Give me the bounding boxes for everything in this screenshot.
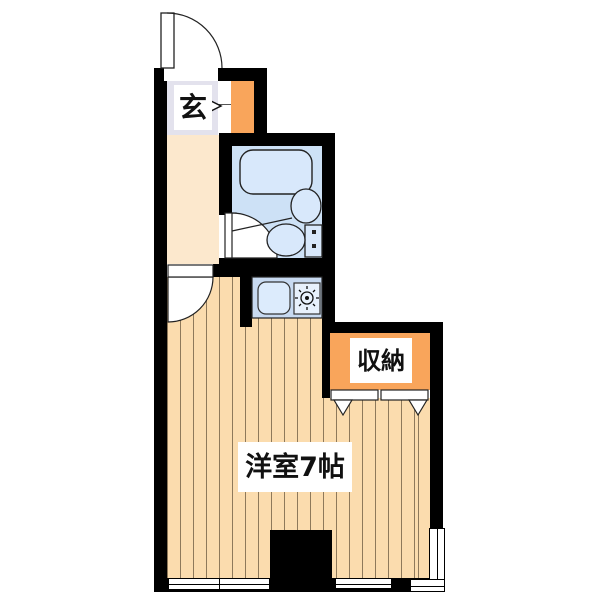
main-room-label-box: 洋室7帖 xyxy=(238,442,352,492)
toilet-handle-dot xyxy=(312,230,316,234)
entrance-label-box: 玄 xyxy=(174,85,212,130)
entry-door-swing-icon xyxy=(167,13,222,68)
bathtub-icon xyxy=(240,150,312,194)
entry-door-leaf xyxy=(161,13,174,68)
toilet-bowl-icon xyxy=(267,224,305,256)
closet-door-chevron-left xyxy=(334,400,352,415)
window-corner-horizontal xyxy=(410,579,445,592)
toilet-handle-dot2 xyxy=(312,244,316,248)
window-glass-line2 xyxy=(336,584,391,585)
window-divider xyxy=(219,579,220,589)
window-bottom-right xyxy=(335,578,392,589)
storage-label: 収納 xyxy=(357,349,405,373)
window-glass-line4 xyxy=(411,586,444,587)
kitchen-sink-icon xyxy=(258,282,290,314)
window-bottom-left xyxy=(168,578,270,590)
floor-plan: 玄 収納 洋室7帖 xyxy=(0,0,600,600)
room-door-swing-icon xyxy=(168,277,213,322)
closet-door-panel-left xyxy=(331,390,378,400)
closet-door-chevron-right xyxy=(409,400,427,415)
main-room-label: 洋室7帖 xyxy=(245,454,345,481)
storage-label-box: 収納 xyxy=(350,338,412,383)
fixtures-layer xyxy=(0,0,600,600)
toilet-tank xyxy=(305,225,322,257)
closet-door-panel-right xyxy=(381,390,428,400)
entrance-label: 玄 xyxy=(179,94,207,122)
room-door-leaf xyxy=(168,265,213,277)
washbasin-icon xyxy=(291,189,321,223)
